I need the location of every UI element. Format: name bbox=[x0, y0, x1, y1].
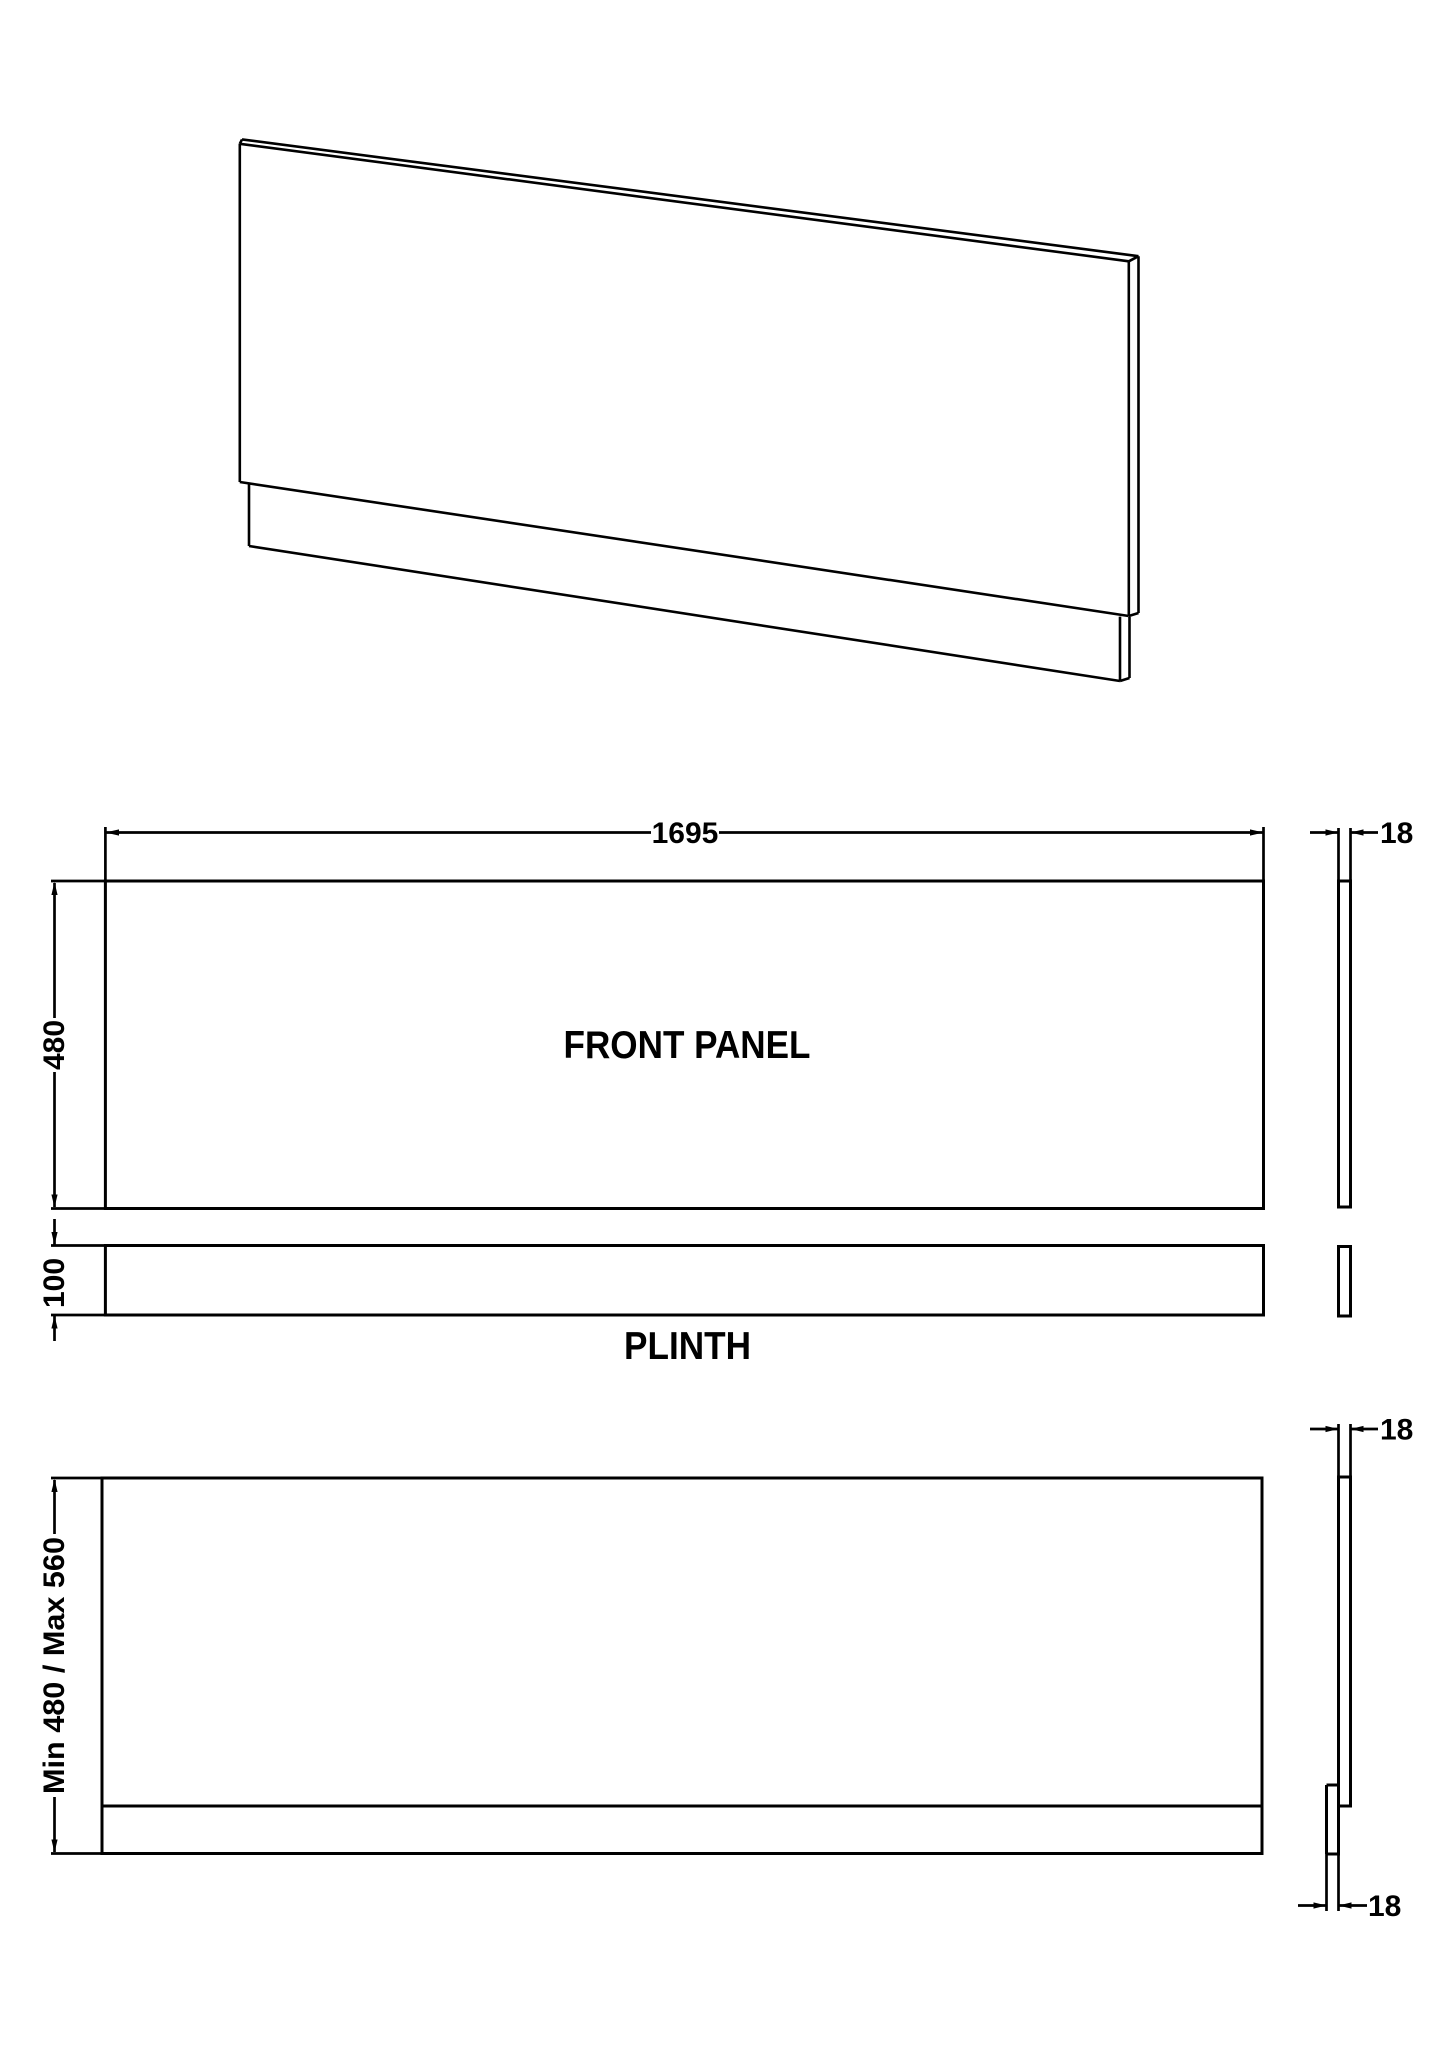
svg-text:PLINTH: PLINTH bbox=[624, 1325, 751, 1368]
svg-text:480: 480 bbox=[38, 1020, 71, 1070]
svg-text:18: 18 bbox=[1380, 1414, 1413, 1447]
svg-text:18: 18 bbox=[1380, 817, 1413, 850]
svg-text:Min 480 / Max 560: Min 480 / Max 560 bbox=[38, 1537, 71, 1794]
svg-text:1695: 1695 bbox=[652, 817, 719, 850]
svg-text:FRONT PANEL: FRONT PANEL bbox=[564, 1024, 811, 1067]
svg-text:18: 18 bbox=[1368, 1890, 1401, 1923]
svg-text:100: 100 bbox=[38, 1258, 71, 1308]
